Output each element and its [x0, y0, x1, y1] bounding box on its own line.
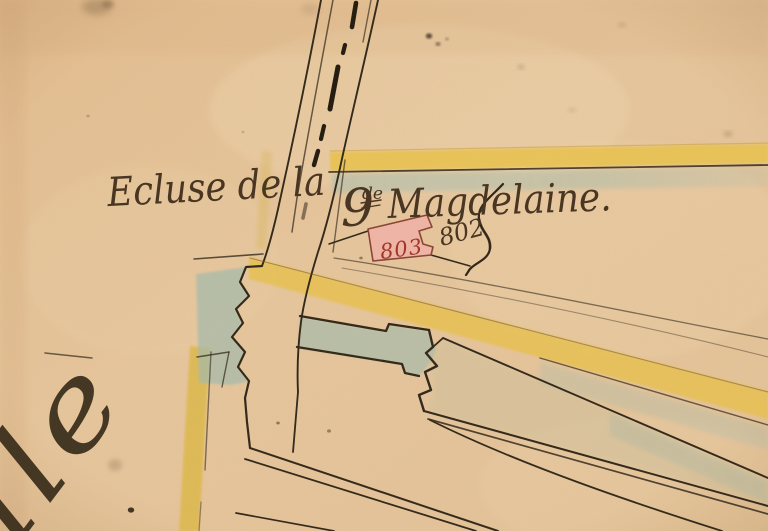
map-canvas: Ecluse de la 9 de Magdelaine. 802 803 il… — [0, 0, 768, 531]
paper-grain — [0, 0, 768, 531]
archival-canal-map: Ecluse de la 9 de Magdelaine. 802 803 il… — [0, 0, 768, 531]
